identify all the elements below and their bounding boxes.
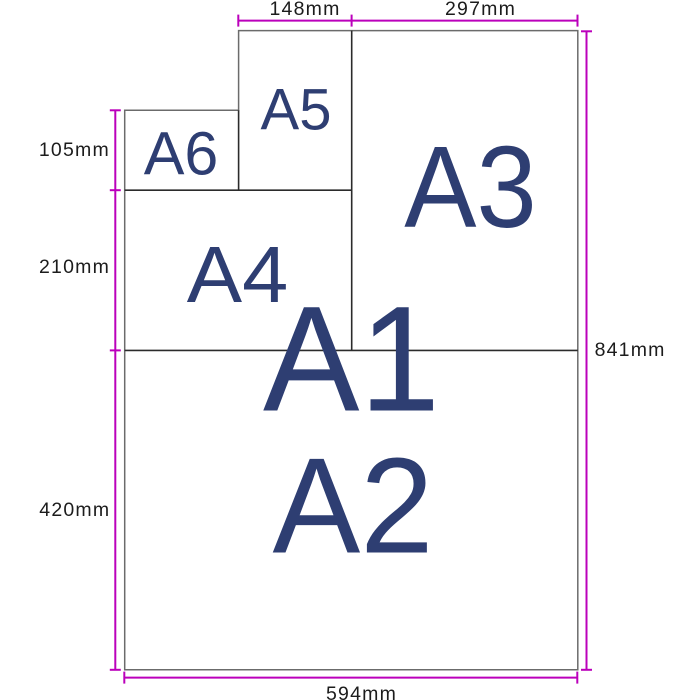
svg-text:297mm: 297mm	[445, 0, 516, 20]
svg-text:148mm: 148mm	[269, 0, 340, 20]
svg-text:420mm: 420mm	[39, 499, 110, 521]
svg-text:594mm: 594mm	[326, 683, 397, 700]
svg-text:A3: A3	[404, 122, 537, 252]
svg-text:A2: A2	[273, 430, 434, 582]
svg-text:A5: A5	[261, 78, 332, 143]
svg-text:A6: A6	[144, 120, 219, 188]
svg-text:105mm: 105mm	[39, 139, 110, 161]
svg-text:A1: A1	[263, 275, 440, 443]
svg-text:841mm: 841mm	[595, 339, 666, 361]
svg-text:210mm: 210mm	[39, 256, 110, 278]
